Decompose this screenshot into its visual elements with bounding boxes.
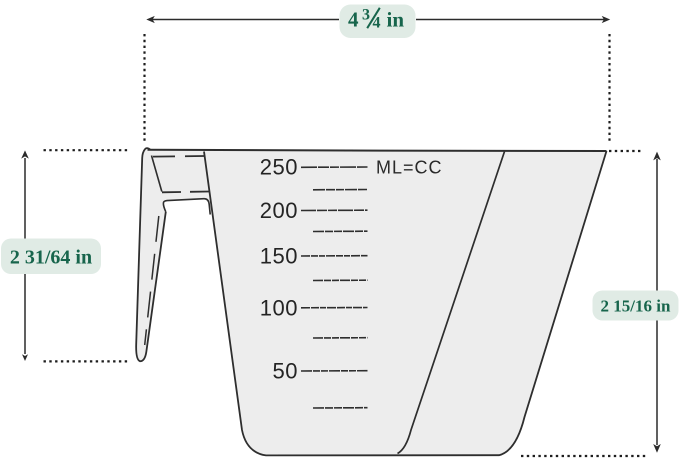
svg-text:150: 150 [260,244,298,269]
svg-text:ML=CC: ML=CC [376,158,443,178]
svg-text:2 31/64 in: 2 31/64 in [10,247,92,269]
svg-text:100: 100 [260,296,298,321]
svg-text:2 15/16 in: 2 15/16 in [601,297,671,316]
svg-text:50: 50 [273,359,298,384]
svg-text:3: 3 [362,7,370,24]
svg-text:200: 200 [260,198,298,223]
svg-text:in: in [387,8,405,32]
svg-text:4: 4 [348,8,359,32]
svg-text:250: 250 [260,155,298,180]
svg-text:4: 4 [373,15,381,32]
